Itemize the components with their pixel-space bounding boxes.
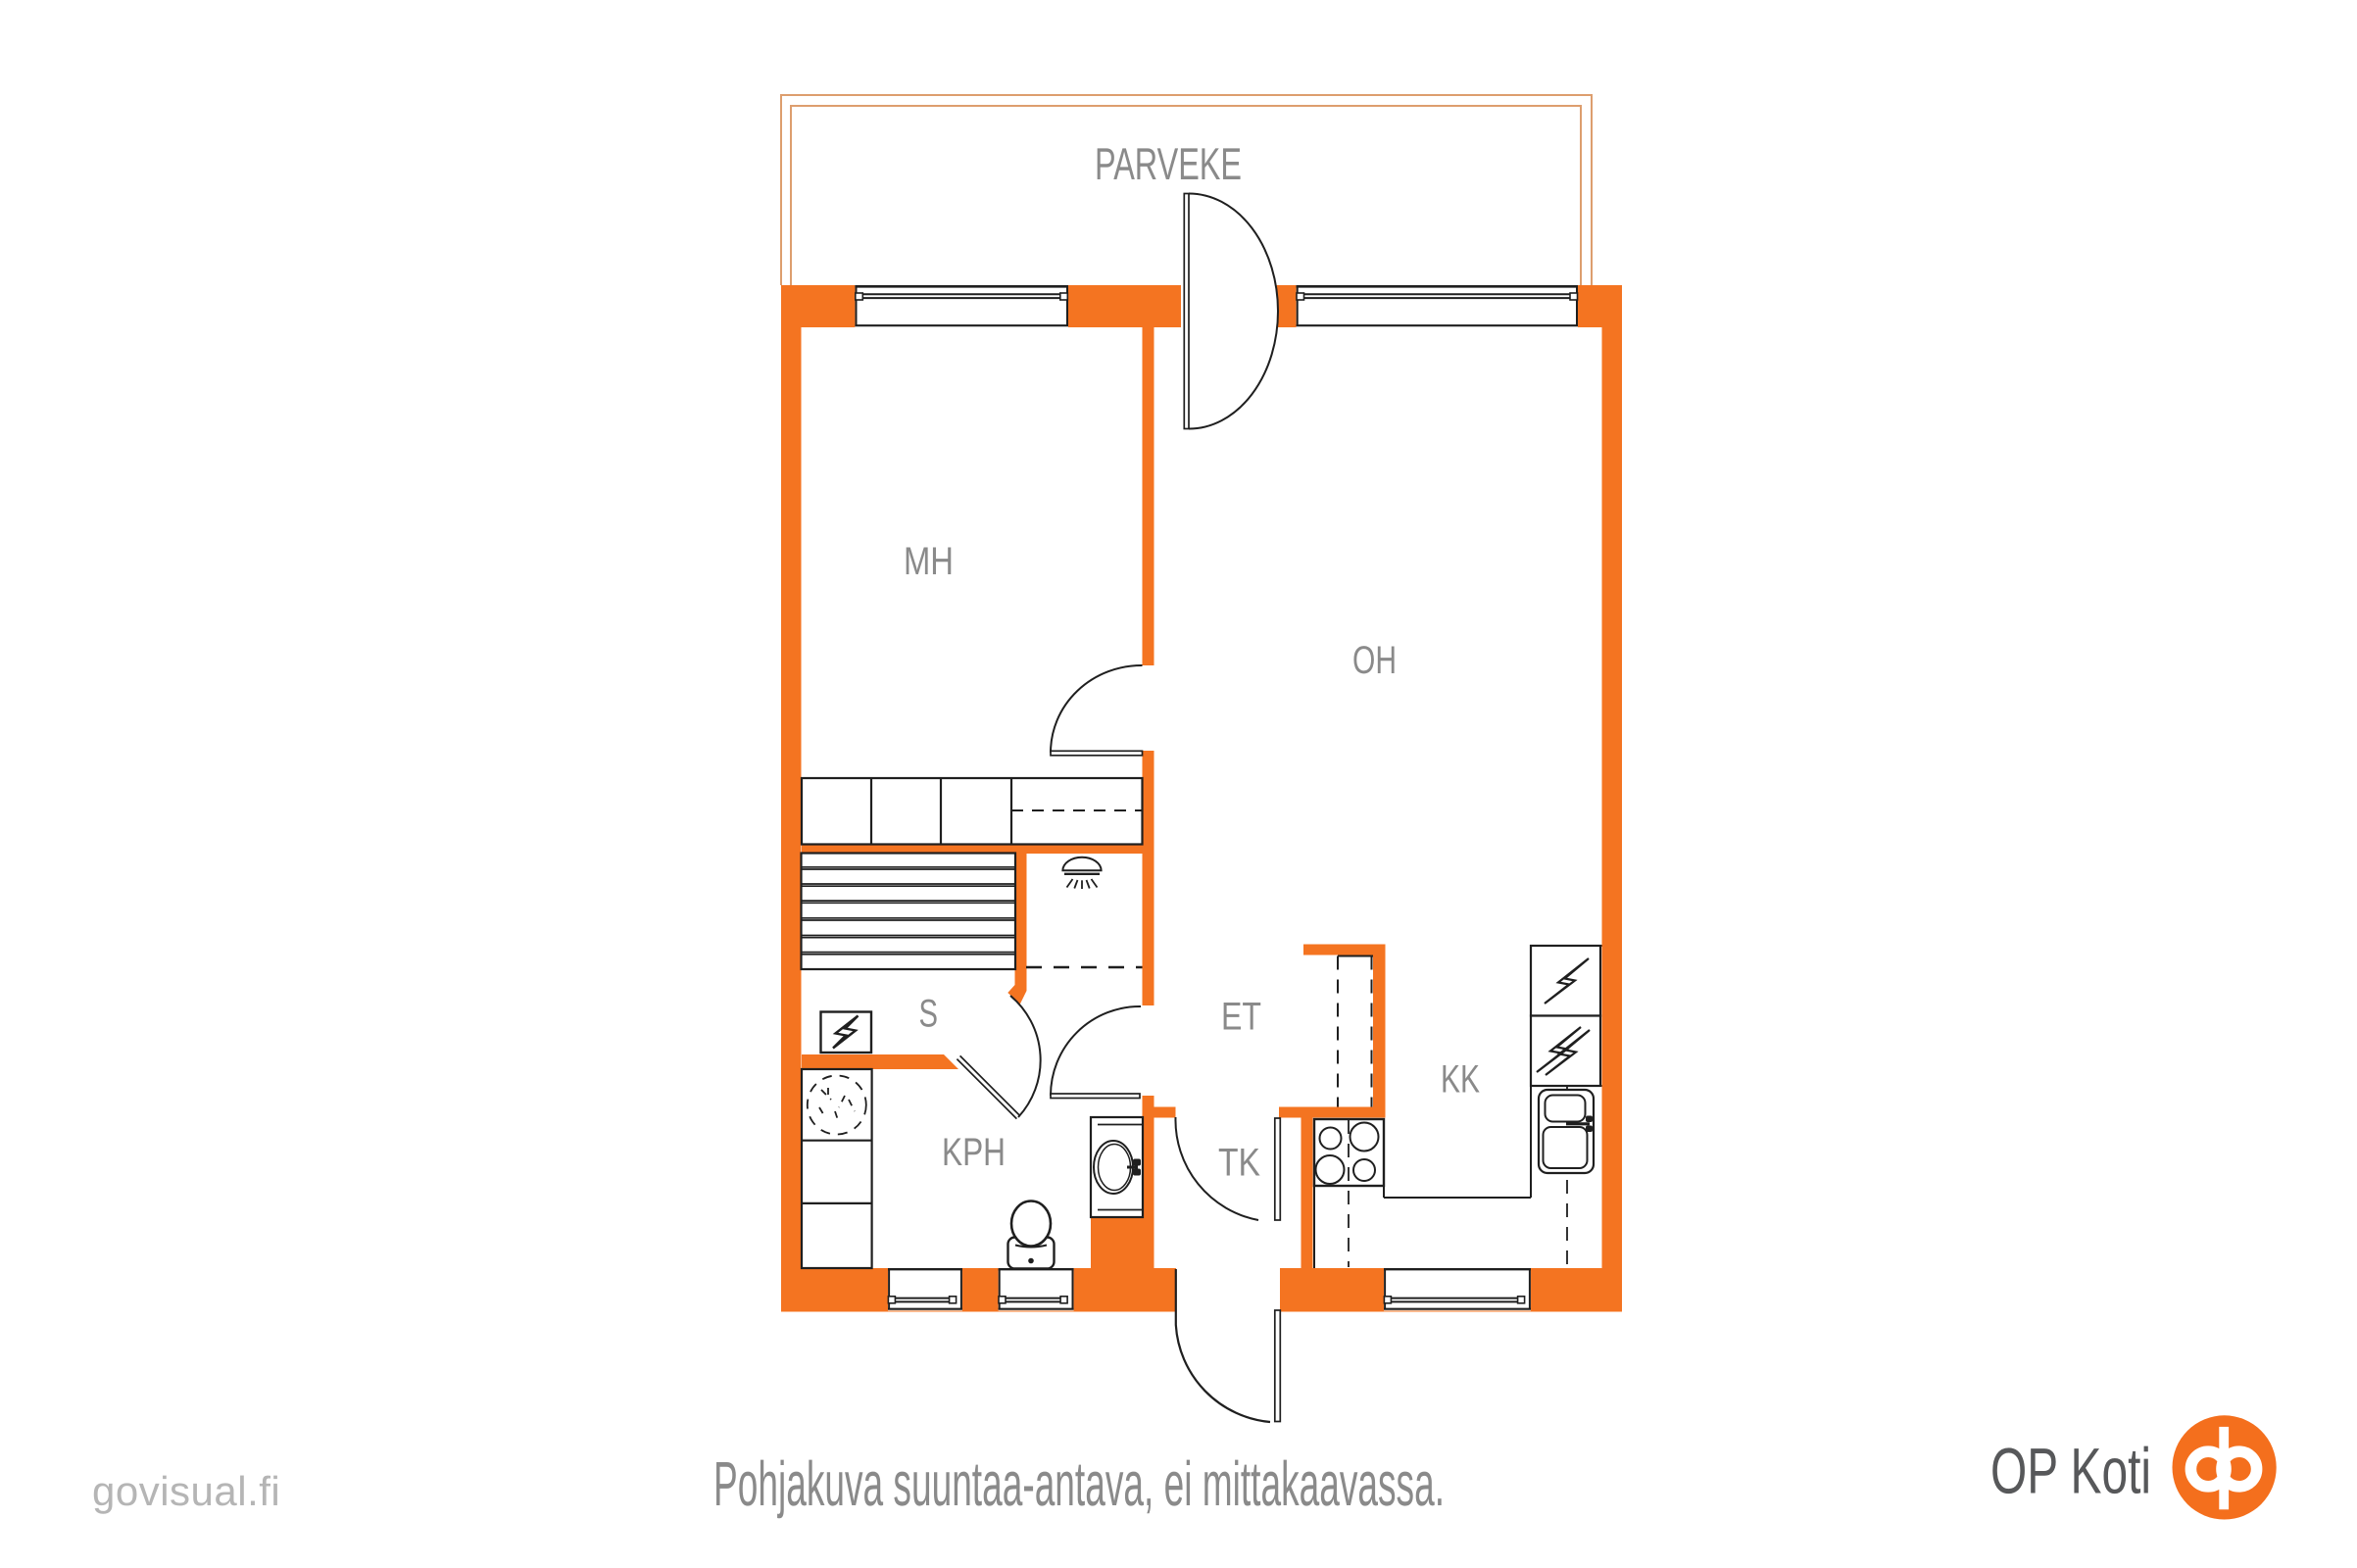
svg-text:ET: ET [1221, 996, 1261, 1039]
svg-text:TK: TK [1218, 1142, 1260, 1185]
svg-text:OP Koti: OP Koti [1990, 1435, 2151, 1507]
svg-text:MH: MH [904, 540, 954, 583]
svg-text:S: S [919, 993, 939, 1036]
svg-text:Pohjakuva suuntaa-antava, ei m: Pohjakuva suuntaa-antava, ei mittakaavas… [713, 1448, 1445, 1519]
svg-text:PARVEKE: PARVEKE [1095, 138, 1242, 189]
svg-text:govisual.fi: govisual.fi [92, 1468, 280, 1514]
svg-text:OH: OH [1352, 639, 1397, 682]
svg-text:KK: KK [1441, 1058, 1480, 1102]
svg-text:KPH: KPH [942, 1131, 1006, 1174]
